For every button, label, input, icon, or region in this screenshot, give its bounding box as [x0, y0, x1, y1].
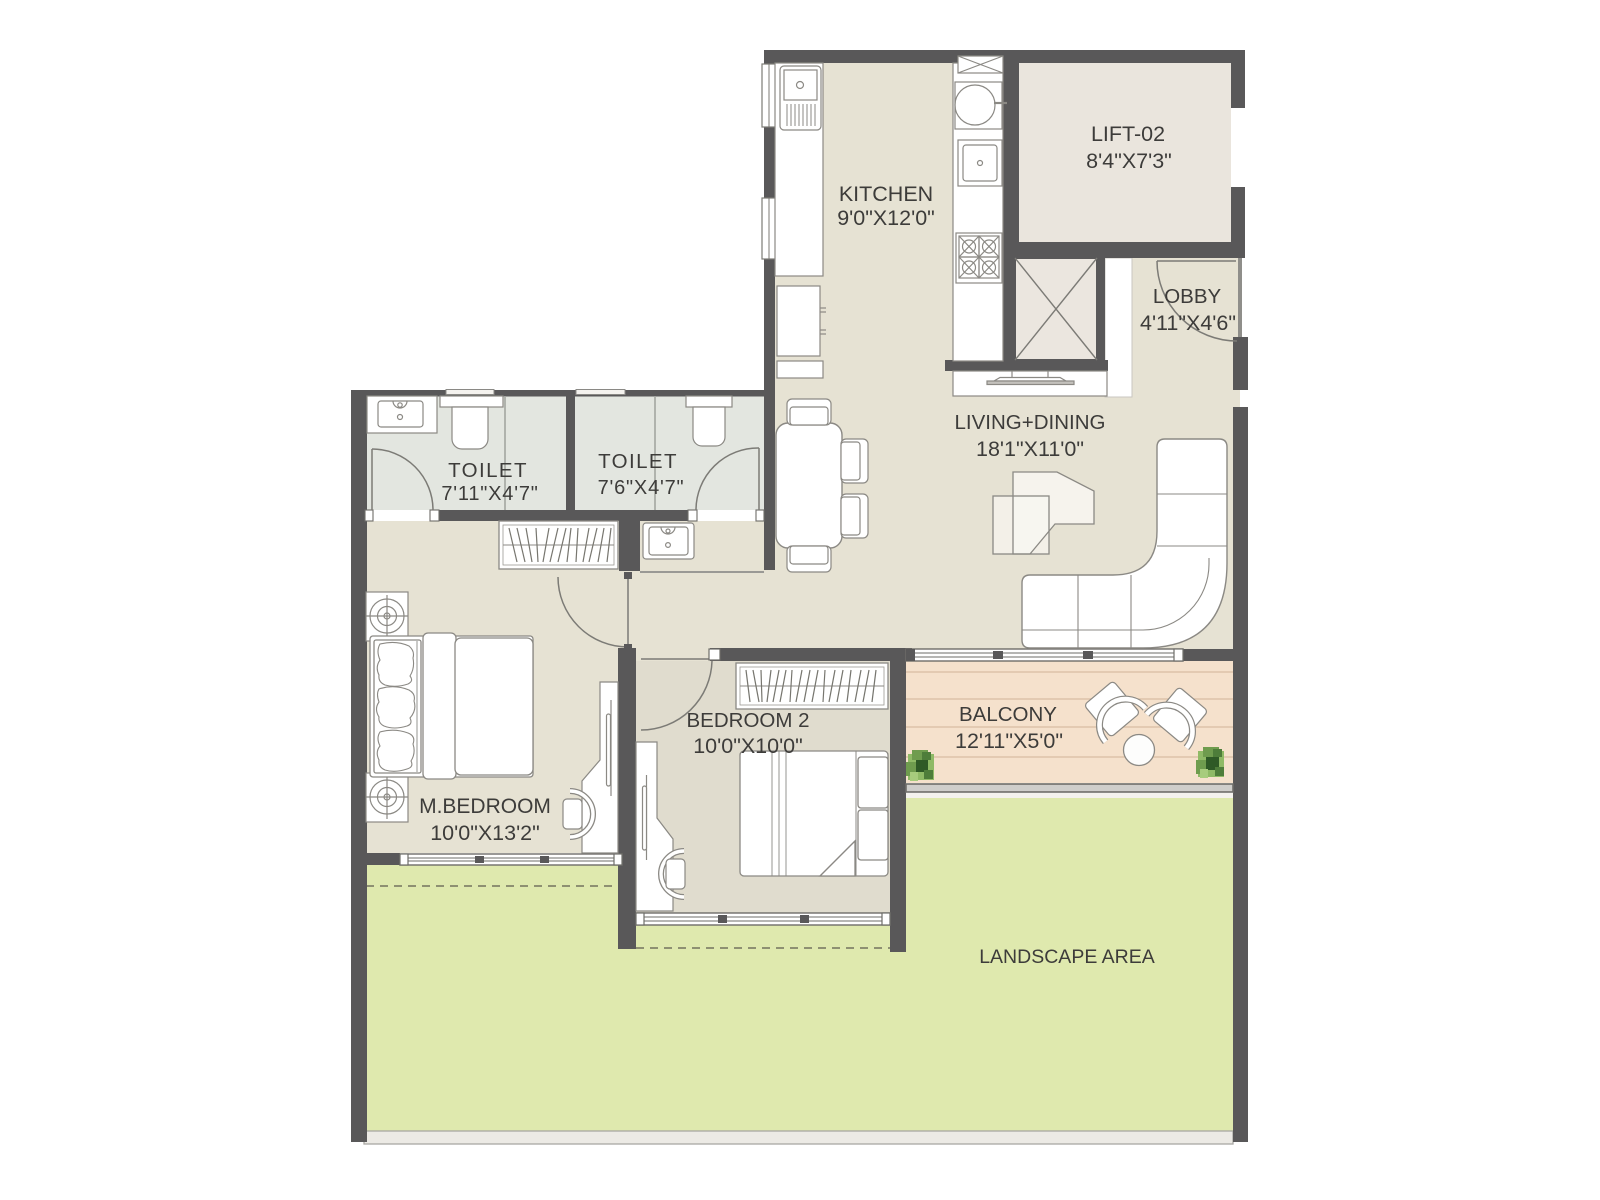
svg-text:9'0"X12'0": 9'0"X12'0" [837, 206, 935, 230]
svg-text:LIVING+DINING: LIVING+DINING [955, 411, 1106, 434]
svg-text:TOILET: TOILET [598, 450, 678, 473]
svg-text:10'0"X13'2": 10'0"X13'2" [430, 821, 540, 845]
svg-text:LOBBY: LOBBY [1153, 285, 1222, 308]
svg-text:18'1"X11'0": 18'1"X11'0" [976, 437, 1084, 461]
svg-text:7'6"X4'7": 7'6"X4'7" [598, 477, 685, 499]
svg-text:12'11"X5'0": 12'11"X5'0" [955, 729, 1063, 753]
svg-text:M.BEDROOM: M.BEDROOM [419, 795, 551, 818]
svg-text:BALCONY: BALCONY [959, 703, 1057, 726]
svg-text:KITCHEN: KITCHEN [839, 182, 933, 206]
svg-text:10'0"X10'0": 10'0"X10'0" [693, 734, 803, 758]
svg-text:LIFT-02: LIFT-02 [1091, 122, 1165, 146]
svg-text:LANDSCAPE AREA: LANDSCAPE AREA [979, 946, 1155, 968]
svg-text:4'11"X4'6": 4'11"X4'6" [1140, 311, 1236, 335]
svg-text:8'4"X7'3": 8'4"X7'3" [1086, 149, 1172, 173]
svg-text:TOILET: TOILET [448, 459, 528, 482]
svg-text:7'11"X4'7": 7'11"X4'7" [441, 483, 538, 505]
svg-text:BEDROOM 2: BEDROOM 2 [686, 709, 809, 732]
